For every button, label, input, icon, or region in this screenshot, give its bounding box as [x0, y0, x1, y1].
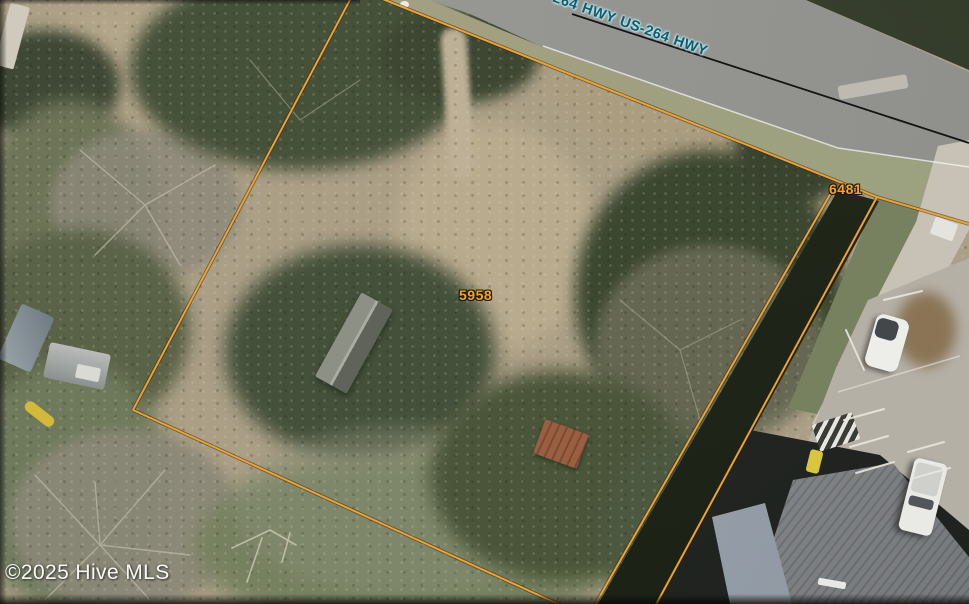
parcel-number-6481: 6481: [829, 181, 862, 197]
bare-tree-branches: [35, 150, 215, 600]
parcel-number-5958: 5958: [459, 287, 492, 303]
mls-watermark: ©2025 Hive MLS: [5, 561, 170, 585]
parcel-boundary-shadows: [133, 0, 969, 604]
edge-shadow-bottom: [0, 594, 969, 604]
edge-shadow-left: [0, 0, 7, 604]
swing-set: [232, 530, 296, 582]
edge-shadow-top-left: [0, 0, 360, 5]
parking-stripes: [844, 291, 950, 478]
aerial-map: 264 HWY US-264 HWY 5958 6481 ©2025 Hive …: [0, 0, 969, 604]
parking-row-line: [838, 356, 960, 392]
